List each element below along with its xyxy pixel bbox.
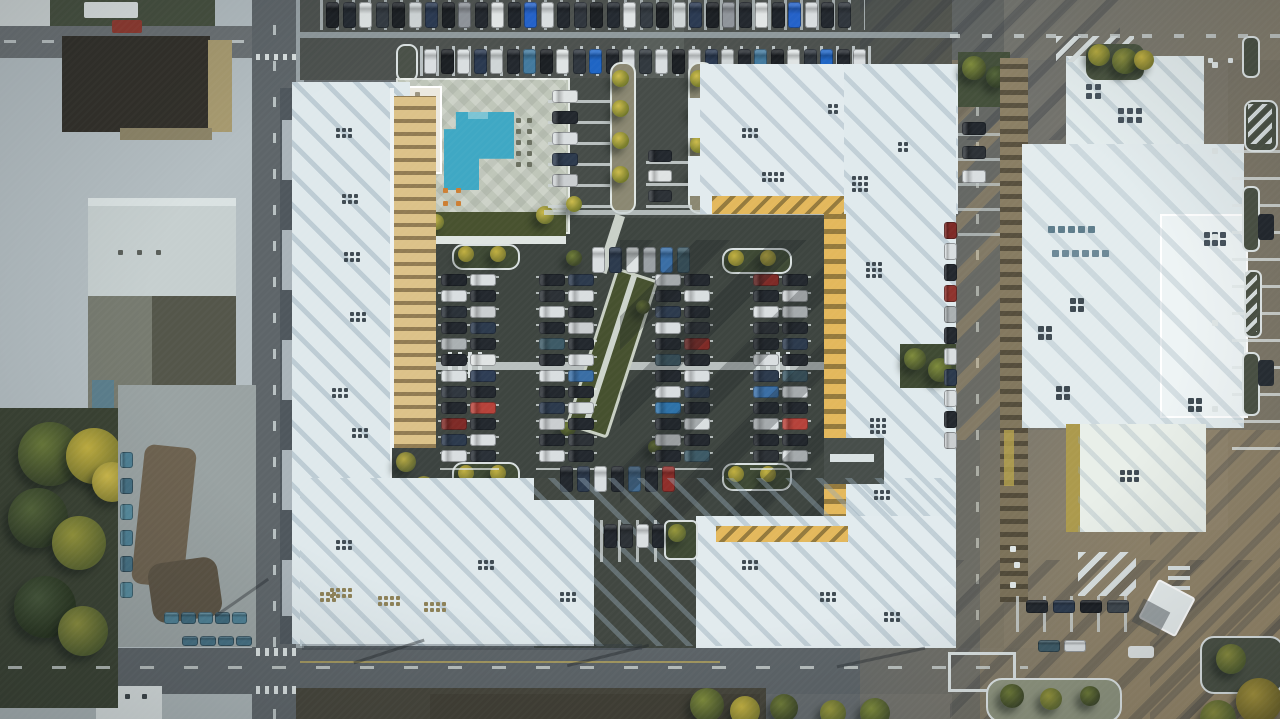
vignette [0,0,1280,719]
aerial-photograph-apartment-complex [0,0,1280,719]
